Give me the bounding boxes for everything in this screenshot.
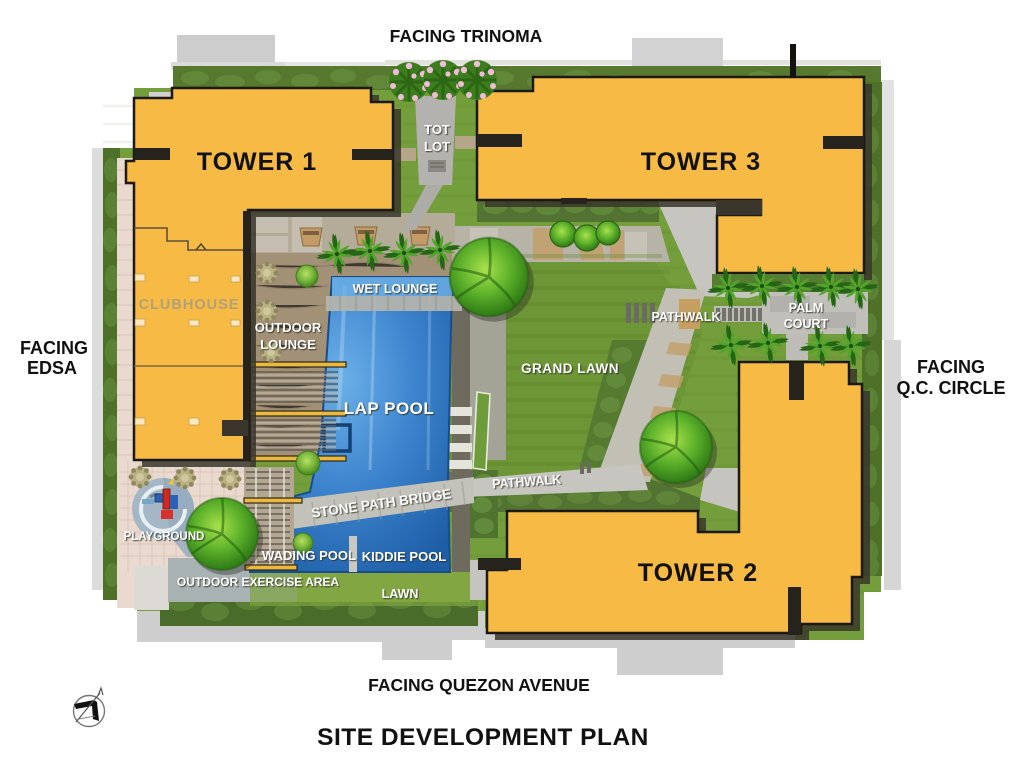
svg-text:PLAYGROUND: PLAYGROUND — [124, 531, 205, 543]
svg-text:WADING POOL: WADING POOL — [262, 548, 356, 563]
svg-text:FACING: FACING — [917, 357, 985, 377]
svg-text:COURT: COURT — [784, 317, 829, 331]
svg-text:PATHWALK: PATHWALK — [652, 310, 721, 324]
svg-text:CLUBHOUSE: CLUBHOUSE — [139, 297, 240, 313]
svg-text:LAP POOL: LAP POOL — [344, 399, 435, 418]
svg-text:TOWER 1: TOWER 1 — [197, 148, 317, 176]
svg-text:KIDDIE POOL: KIDDIE POOL — [362, 549, 447, 564]
svg-text:LOT: LOT — [424, 139, 450, 154]
svg-text:PALM: PALM — [789, 301, 824, 315]
svg-text:FACING QUEZON AVENUE: FACING QUEZON AVENUE — [368, 675, 590, 695]
svg-text:WET LOUNGE: WET LOUNGE — [353, 282, 438, 296]
svg-text:OUTDOOR: OUTDOOR — [255, 320, 322, 335]
svg-text:SITE DEVELOPMENT PLAN: SITE DEVELOPMENT PLAN — [317, 724, 649, 751]
svg-text:TOWER 3: TOWER 3 — [641, 148, 761, 176]
svg-text:LAWN: LAWN — [382, 587, 419, 601]
svg-text:FACING: FACING — [20, 338, 88, 358]
svg-text:OUTDOOR EXERCISE AREA: OUTDOOR EXERCISE AREA — [177, 575, 340, 589]
svg-text:LOUNGE: LOUNGE — [260, 337, 316, 352]
svg-text:Q.C. CIRCLE: Q.C. CIRCLE — [896, 378, 1005, 398]
svg-text:GRAND LAWN: GRAND LAWN — [521, 361, 619, 376]
svg-text:EDSA: EDSA — [27, 358, 77, 378]
svg-text:TOWER 2: TOWER 2 — [638, 559, 758, 587]
svg-text:TOT: TOT — [424, 122, 450, 137]
svg-text:FACING TRINOMA: FACING TRINOMA — [390, 26, 543, 46]
